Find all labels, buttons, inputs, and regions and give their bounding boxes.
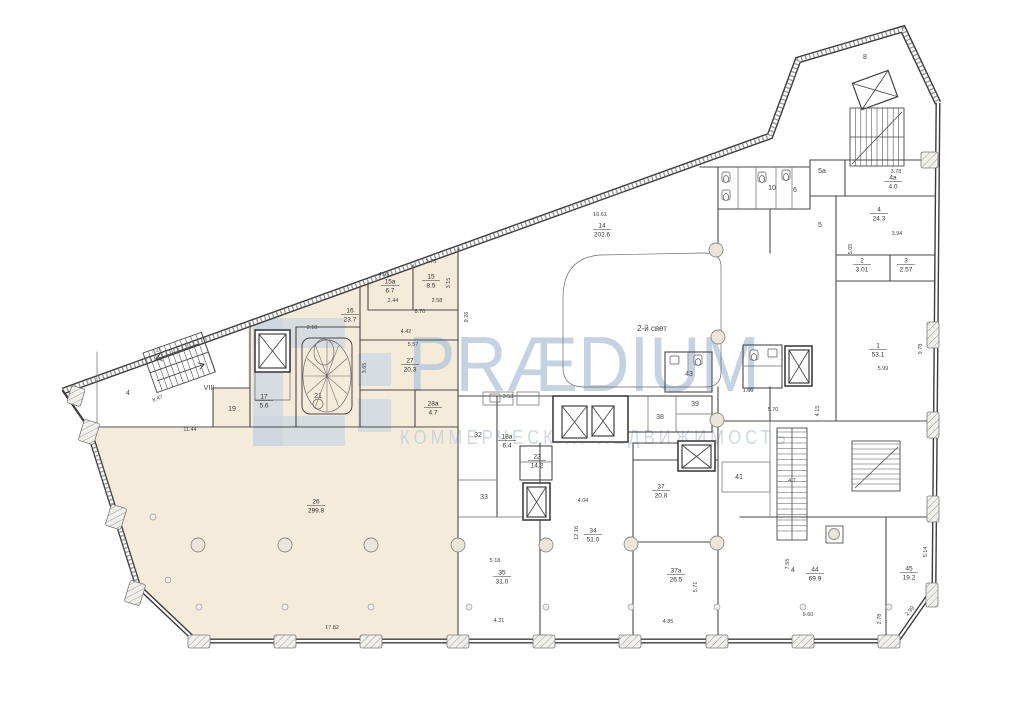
svg-text:3: 3 [904,258,908,265]
floor-plan-svg: PRÆDIUM КОММЕРЧЕСКАЯ НЕДВИЖИМОСТЬ [0,0,1024,710]
dimension-3.94: 3.94 [892,231,903,237]
room-label-4а: 4а4.0 [884,175,902,191]
room-label-44: 4469.9 [806,567,824,583]
svg-text:39: 39 [691,401,699,408]
dimension-5.71: 5.71 [693,582,699,593]
svg-text:22: 22 [533,454,541,461]
dimension-3.53: 3.53 [503,394,514,400]
room-label-37а: 37а26.5 [667,568,685,584]
svg-text:2.44: 2.44 [388,298,399,304]
svg-text:35: 35 [498,570,506,577]
staircase-top-left [143,332,215,392]
toilet-icon [782,170,790,180]
svg-text:18а: 18а [502,434,513,441]
dimension-1.66: 1.66 [743,388,754,394]
svg-text:26: 26 [312,499,320,506]
dimension-2.58: 2.58 [432,298,443,304]
sink-icon [768,349,777,357]
svg-text:5а: 5а [818,168,826,175]
dimension-4.95: 4.95 [379,272,390,278]
svg-text:VIII: VIII [204,385,215,392]
svg-text:44: 44 [811,567,819,574]
svg-text:8.47: 8.47 [152,394,164,403]
svg-text:41: 41 [735,474,743,481]
room-label-4: 4 [126,390,130,397]
svg-text:1.66: 1.66 [743,388,754,394]
room-label-22: 2214.2 [528,454,546,470]
svg-text:12.18: 12.18 [574,526,580,540]
svg-text:24.3: 24.3 [873,216,886,223]
room-label-33: 33 [480,494,488,501]
svg-text:8: 8 [863,54,867,61]
dimension-9.78: 9.78 [918,344,924,355]
svg-text:28а: 28а [428,401,439,408]
svg-text:7.55: 7.55 [785,559,791,570]
svg-text:202.6: 202.6 [594,232,611,239]
toilet-icon [722,172,730,182]
svg-text:3.01: 3.01 [856,267,869,274]
room-label-3: 32.57 [897,258,915,274]
dimension-2.78: 2.78 [877,614,883,625]
dimension-16.61: 16.61 [593,212,607,218]
svg-text:4.0: 4.0 [888,184,897,191]
room-label-19: 19 [228,406,236,413]
svg-text:6: 6 [793,187,797,194]
room-label-8: 8 [863,54,867,61]
svg-text:5: 5 [818,222,822,229]
room-label-21: 21 [314,393,322,400]
dimension-4.15: 4.15 [815,406,821,417]
staircase-top-right [850,108,904,166]
svg-text:15: 15 [427,274,435,281]
svg-text:17: 17 [260,394,268,401]
svg-text:9.26: 9.26 [464,312,470,323]
svg-text:16: 16 [346,308,354,315]
svg-text:3.53: 3.53 [503,394,514,400]
svg-text:6.4: 6.4 [502,443,511,450]
svg-text:14: 14 [598,223,606,230]
svg-text:299.8: 299.8 [308,508,325,515]
svg-text:2: 2 [860,258,864,265]
dimension-5.70: 5.70 [768,407,779,413]
room-label-38: 38 [656,414,664,421]
room-label-6: 6 [793,187,797,194]
room-label-5а: 5а [818,168,826,175]
room-label-45: 4519.2 [900,566,918,582]
svg-text:21: 21 [314,393,322,400]
svg-text:31.0: 31.0 [496,579,509,586]
dimension-2.44: 2.44 [388,298,399,304]
dimension-4.7: 4.7 [788,478,796,484]
svg-text:45: 45 [905,566,913,573]
room-label-43: 43 [685,371,693,378]
svg-text:11.44: 11.44 [183,427,196,433]
svg-text:5.6: 5.6 [259,403,268,410]
dimension-5.18: 5.18 [490,558,501,564]
dimension-11.44: 11.44 [183,427,196,433]
room-label-4: 424.3 [870,207,888,223]
svg-text:17.82: 17.82 [325,625,339,631]
dimension-5.57: 5.57 [408,342,419,348]
svg-text:8.70: 8.70 [415,309,426,315]
dimension-5.99: 5.99 [878,366,889,372]
svg-text:4: 4 [791,567,795,574]
toilet-icon [750,350,758,360]
sink-icon [670,356,679,364]
svg-text:4.95: 4.95 [379,272,390,278]
svg-text:5.70: 5.70 [768,407,779,413]
staircase-right-lower [852,441,900,491]
svg-text:4: 4 [126,390,130,397]
room-label-35: 3531.0 [493,570,511,586]
dimension-4.04: 4.04 [578,498,589,504]
toilet-icon [722,190,730,200]
svg-text:19: 19 [228,406,236,413]
dimension-3.15: 3.15 [446,278,452,289]
dimension-17.82: 17.82 [325,625,339,631]
svg-text:37а: 37а [671,568,682,575]
dimension-4.85: 4.85 [663,619,674,625]
toilet-icon [694,355,702,365]
svg-text:5.57: 5.57 [408,342,419,348]
svg-text:4.42: 4.42 [401,329,412,335]
room-label-2: 23.01 [853,258,871,274]
svg-text:43: 43 [685,371,693,378]
dimension-2.75: 2.75 [426,259,437,265]
svg-text:4.85: 4.85 [663,619,674,625]
toilet-icon [758,172,766,182]
svg-text:2.10: 2.10 [307,325,318,331]
svg-text:5.14: 5.14 [923,547,929,558]
svg-text:15а: 15а [385,279,396,286]
svg-text:5.05: 5.05 [848,244,854,255]
dimension-9.26: 9.26 [464,312,470,323]
room-label-39: 39 [691,401,699,408]
dimension-4.31: 4.31 [494,618,505,624]
dimension-7.55: 7.55 [785,559,791,570]
room-label-37: 3720.8 [652,484,670,500]
svg-text:3.15: 3.15 [446,278,452,289]
svg-text:1: 1 [876,343,880,350]
room-label-41: 41 [735,474,743,481]
svg-text:4.7: 4.7 [428,410,437,417]
room-label-32: 32 [474,432,482,439]
highlight-main-hall [89,428,458,640]
svg-text:27: 27 [406,358,414,365]
dimension-3.65: 3.65 [362,363,368,374]
svg-text:4.04: 4.04 [578,498,589,504]
svg-text:33: 33 [480,494,488,501]
dimension-4.42: 4.42 [401,329,412,335]
room-label-2-й свет: 2-й свет [637,324,667,333]
svg-text:4а: 4а [889,175,897,182]
svg-text:9.78: 9.78 [918,344,924,355]
dimension-2.10: 2.10 [307,325,318,331]
svg-text:6.7: 6.7 [385,288,394,295]
svg-text:4.7: 4.7 [788,478,796,484]
svg-text:38: 38 [656,414,664,421]
svg-text:2.58: 2.58 [432,298,443,304]
svg-text:4.31: 4.31 [494,618,505,624]
svg-text:3.94: 3.94 [892,231,903,237]
svg-text:26.5: 26.5 [670,577,683,584]
room-label-34: 3451.0 [584,528,602,544]
svg-text:53.1: 53.1 [872,352,885,359]
svg-text:34: 34 [589,528,597,535]
svg-text:2.78: 2.78 [877,614,883,625]
svg-text:14.2: 14.2 [531,463,544,470]
svg-text:8.5: 8.5 [426,283,435,290]
svg-text:5.99: 5.99 [878,366,889,372]
room-label-10: 10 [768,185,776,192]
svg-text:2.57: 2.57 [900,267,913,274]
room-label-1: 153.1 [869,343,887,359]
svg-text:32: 32 [474,432,482,439]
dimension-5.05: 5.05 [848,244,854,255]
dimension-8.47: 8.47 [152,394,164,403]
svg-text:10: 10 [768,185,776,192]
svg-text:23.7: 23.7 [344,317,357,324]
svg-text:19.2: 19.2 [903,575,916,582]
room-label-5: 5 [818,222,822,229]
dimension-8.70: 8.70 [415,309,426,315]
svg-text:37: 37 [657,484,665,491]
svg-text:2.75: 2.75 [426,259,437,265]
room-label-VIII: VIII [204,385,215,392]
svg-text:4.15: 4.15 [815,406,821,417]
svg-text:9.60: 9.60 [803,612,814,618]
svg-text:3.78: 3.78 [891,169,902,175]
dimension-3.78: 3.78 [891,169,902,175]
svg-text:5.18: 5.18 [490,558,501,564]
dimension-12.18: 12.18 [574,526,580,540]
room-label-14: 14202.6 [593,223,611,239]
svg-text:69.9: 69.9 [809,576,822,583]
dimension-5.14: 5.14 [923,547,929,558]
svg-text:16.61: 16.61 [593,212,607,218]
svg-text:20.3: 20.3 [404,367,417,374]
svg-text:3.65: 3.65 [362,363,368,374]
watermark-brand-text: PRÆDIUM [408,320,760,408]
svg-text:5.71: 5.71 [693,582,699,593]
room-label-4: 4 [791,567,795,574]
floor-plan-image: PRÆDIUM КОММЕРЧЕСКАЯ НЕДВИЖИМОСТЬ [0,0,1024,710]
svg-text:51.0: 51.0 [587,537,600,544]
svg-text:4: 4 [877,207,881,214]
svg-text:20.8: 20.8 [655,493,668,500]
dimension-9.60: 9.60 [803,612,814,618]
svg-text:2-й свет: 2-й свет [637,324,667,333]
